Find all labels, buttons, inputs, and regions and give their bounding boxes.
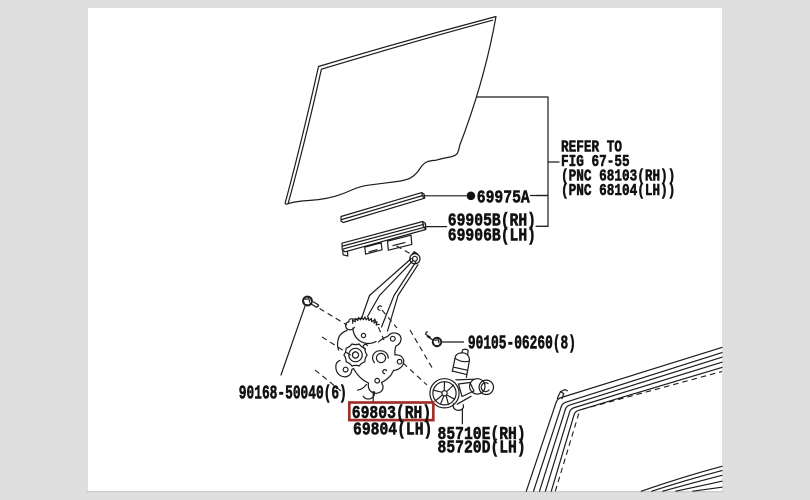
svg-text:69906B(LH): 69906B(LH)	[448, 226, 536, 247]
svg-text:90105-06260(8): 90105-06260(8)	[468, 332, 576, 354]
svg-text:(PNC 68104(LH)): (PNC 68104(LH))	[561, 183, 675, 201]
svg-text:69975A: 69975A	[477, 188, 531, 209]
svg-text:69804(LH): 69804(LH)	[353, 420, 432, 441]
svg-text:85720D(LH): 85720D(LH)	[438, 438, 526, 459]
svg-text:90168-50040(6): 90168-50040(6)	[239, 382, 347, 404]
